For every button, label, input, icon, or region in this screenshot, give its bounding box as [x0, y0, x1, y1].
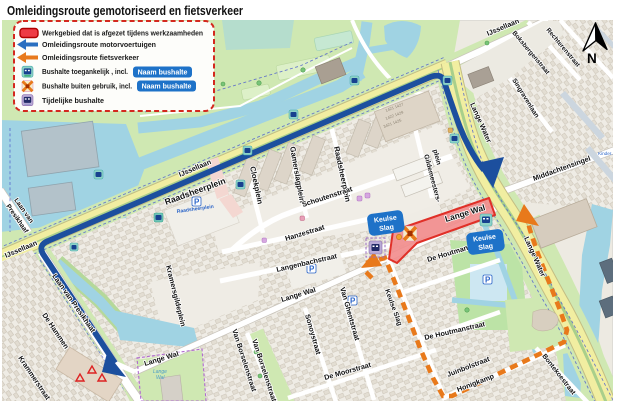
svg-text:Tijdelijke bushalte: Tijdelijke bushalte	[42, 96, 104, 105]
svg-text:Bushalte buiten gebruik, incl.: Bushalte buiten gebruik, incl.	[42, 82, 132, 91]
svg-text:Omleidingsroute gemotoriseerd: Omleidingsroute gemotoriseerd en fietsve…	[7, 3, 243, 18]
svg-text:Omleidingsroute motorvoertuige: Omleidingsroute motorvoertuigen	[42, 40, 156, 49]
svg-text:P: P	[485, 276, 491, 285]
svg-text:Omleidingsroute fietsverkeer: Omleidingsroute fietsverkeer	[42, 53, 139, 62]
svg-text:N: N	[587, 51, 597, 66]
svg-text:Wal: Wal	[156, 375, 165, 381]
svg-text:Werkgebied dat is afgezet tijd: Werkgebied dat is afgezet tijdens werkza…	[42, 29, 203, 38]
svg-text:Naam bushalte: Naam bushalte	[138, 70, 188, 77]
svg-text:Naam bushalte: Naam bushalte	[142, 84, 192, 91]
svg-text:Bushalte toegankelijk , incl.: Bushalte toegankelijk , incl.	[42, 67, 128, 76]
svg-text:Kinder...: Kinder...	[598, 151, 615, 156]
